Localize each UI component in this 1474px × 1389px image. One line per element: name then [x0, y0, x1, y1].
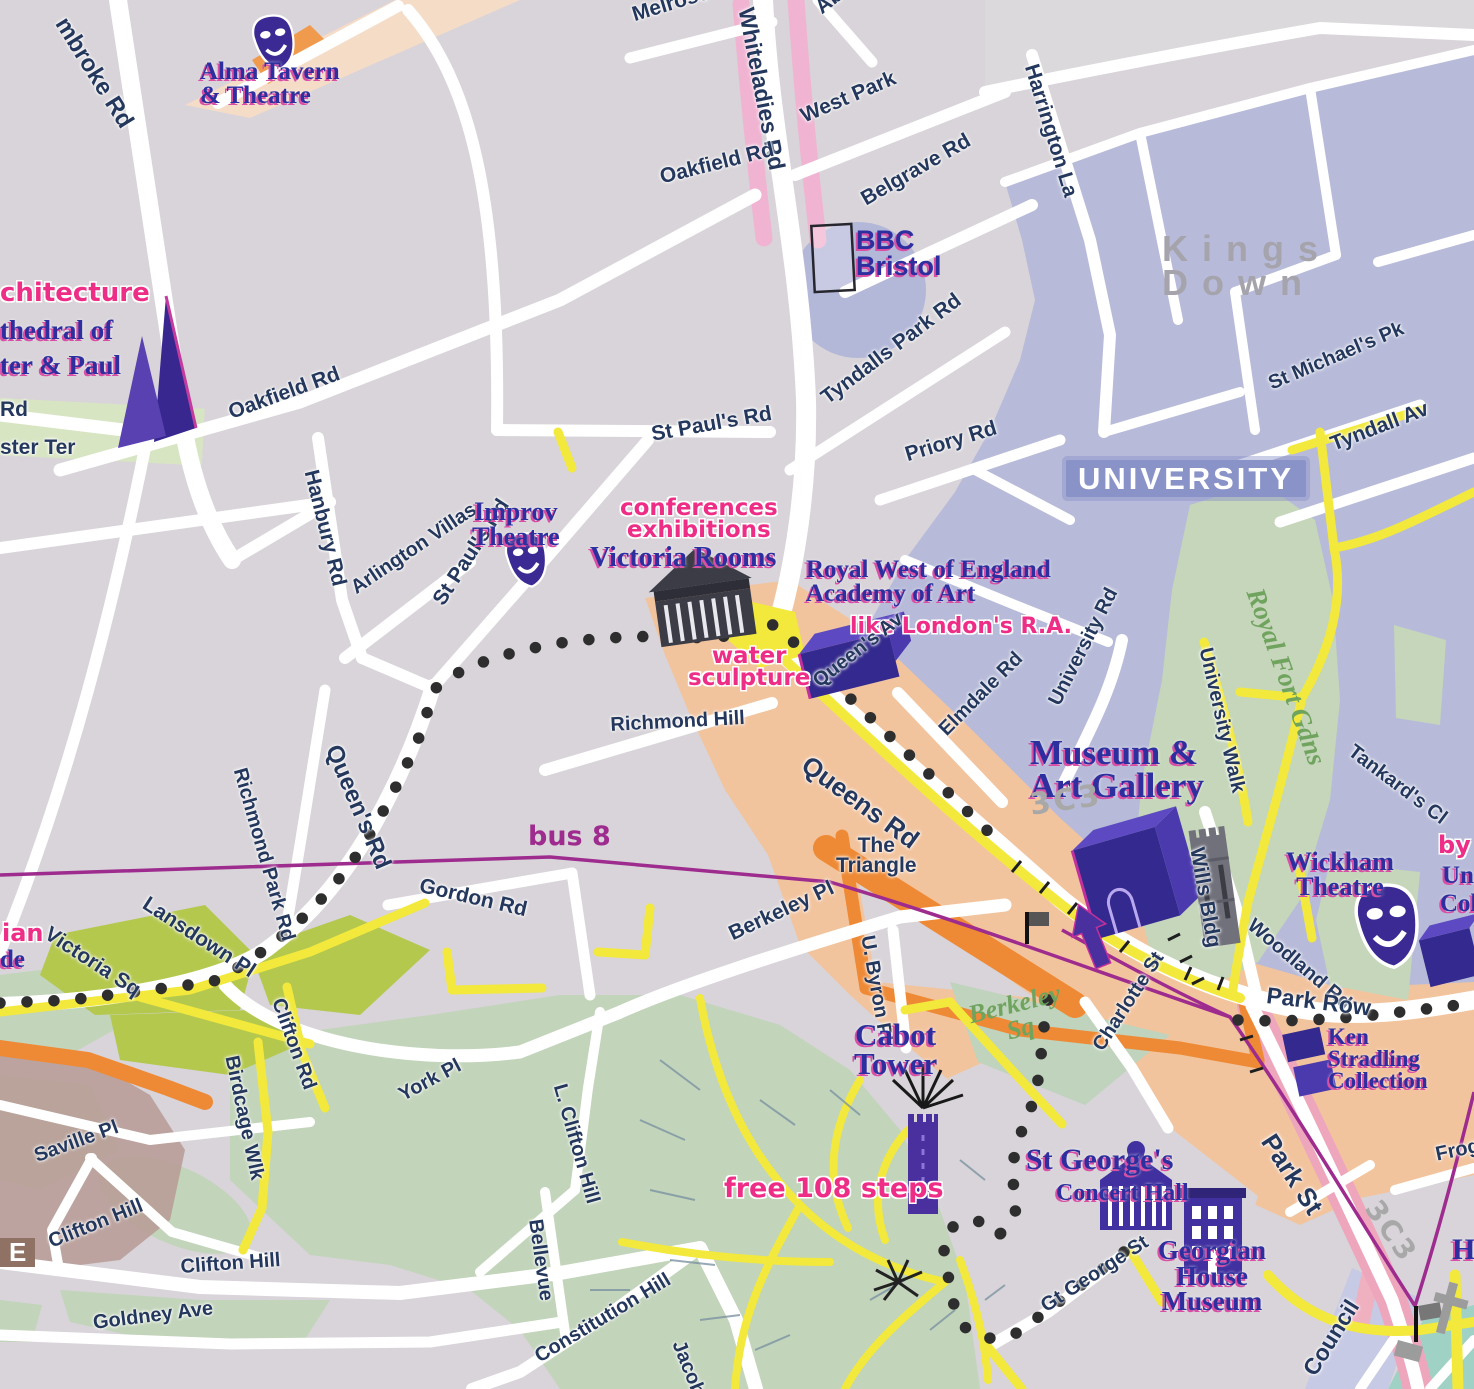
note-free-108-steps: free 108 steps: [724, 1176, 944, 1202]
note-water-sculpture: water sculpture: [688, 646, 810, 690]
street-hanbury-rd: Hanbury Rd: [301, 468, 349, 588]
street-the-triangle: The Triangle: [836, 836, 917, 876]
street-ster-ter-partial: ster Ter: [0, 438, 75, 458]
street-st-michaels-pk: St Michael's Pk: [1266, 319, 1407, 393]
street-saville-pl: Saville Pl: [32, 1118, 121, 1166]
street-oakfield-rd-north: Oakfield Rd: [658, 140, 776, 188]
street-park-row: Park Row: [1265, 985, 1372, 1019]
street-aberdeen-rd: Aberdeen: [812, 0, 901, 18]
route-bus-8: bus 8: [528, 824, 611, 850]
note-by-partial: by: [1438, 834, 1471, 857]
street-bellevue: Bellevue: [525, 1218, 555, 1302]
chip-e-partial: E: [0, 1238, 35, 1267]
street-berkeley-pl: Berkeley Pl: [726, 878, 837, 944]
street-priory-rd: Priory Rd: [903, 418, 999, 465]
poi-concert-hall: Concert Hall: [1056, 1182, 1189, 1205]
street-clifton-hill-east: Clifton Hill: [180, 1251, 281, 1277]
street-birdcage-wlk: Birdcage Wlk: [221, 1054, 266, 1182]
poi-royal-west-academy: Royal West of England Academy of Art: [806, 558, 1051, 606]
street-council-partial: Council: [1300, 1296, 1363, 1379]
street-pembroke-rd: mbroke Rd: [51, 14, 137, 132]
street-melrose-pl: Melrose Pl: [630, 0, 736, 25]
street-harrington-la: Harrington La: [1021, 62, 1080, 199]
street-goldney-ave: Goldney Ave: [92, 1299, 214, 1333]
street-rd-partial: Rd: [0, 400, 28, 420]
glyph-park-st-logo: 3C3: [1360, 1196, 1421, 1267]
street-belgrave-rd: Belgrave Rd: [858, 131, 974, 210]
poi-victoria-rooms: Victoria Rooms: [590, 545, 776, 572]
street-clifton-hill-west: Clifton Hill: [46, 1197, 146, 1252]
street-queens-rd-west: Queen's Rd: [321, 742, 394, 873]
poi-ken-stradling: Ken Stradling Collection: [1328, 1026, 1428, 1092]
poi-cathedral-line2: ter & Paul: [0, 353, 121, 379]
note-ian-partial: ian: [2, 922, 44, 945]
street-richmond-park-rd: Richmond Park Rd: [230, 766, 298, 943]
poi-h-partial: H: [1452, 1236, 1474, 1265]
street-oakfield-rd-west: Oakfield Rd: [226, 364, 342, 423]
street-charlotte-st: Charlotte St: [1090, 949, 1168, 1054]
street-york-pl: York Pl: [396, 1056, 464, 1104]
street-university-rd: University Rd: [1046, 585, 1121, 709]
glyph-museum-logo: 3C3: [1028, 782, 1104, 820]
poi-georgian-house-museum: Georgian House Museum: [1158, 1238, 1266, 1315]
street-gt-george-st: Gt George St: [1038, 1233, 1152, 1316]
note-conferences-exhibitions: conferences exhibitions: [620, 498, 778, 542]
poi-wills-bldg: Wills Bldg: [1186, 846, 1223, 949]
street-victoria-sq: Victoria Sq: [41, 924, 144, 1000]
poi-cabot-tower: Cabot Tower: [854, 1020, 937, 1079]
poi-improv-theatre: Improv Theatre: [472, 500, 560, 549]
street-tankards-cl: Tankard's Cl: [1345, 742, 1450, 828]
street-l-clifton-hill: L. Clifton Hill: [550, 1082, 602, 1206]
poi-col-partial: Col: [1440, 892, 1474, 916]
street-st-pauls-rd-north: St Paul's Rd: [650, 404, 773, 445]
poi-de-partial: de: [0, 948, 25, 972]
street-elmdale-rd: Elmdale Rd: [936, 649, 1026, 739]
poi-un-partial: Un: [1442, 864, 1474, 888]
street-tyndalls-park-rd: Tyndalls Park Rd: [818, 290, 965, 408]
street-tyndall-av: Tyndall Av: [1328, 399, 1431, 455]
poi-bbc-bristol: BBC Bristol: [856, 228, 942, 279]
poi-st-georges: St George's: [1026, 1146, 1173, 1175]
street-richmond-hill: Richmond Hill: [610, 709, 745, 735]
park-royal-fort-gdns: Royal Fort Gdns: [1242, 585, 1330, 769]
street-lansdown-pl: Lansdown Pl: [139, 894, 258, 981]
poi-wickham-theatre: Wickham Theatre: [1286, 850, 1394, 899]
district-university-chip: UNIVERSITY: [1066, 460, 1306, 497]
street-clifton-rd: Clifton Rd: [268, 996, 319, 1092]
street-gordon-rd: Gordon Rd: [418, 876, 529, 920]
park-berkeley-sq: Berkeley Sq: [966, 981, 1069, 1052]
district-kings-down: Kings Down: [1162, 232, 1474, 300]
note-architecture-partial: chitecture: [0, 281, 150, 306]
street-jacob-partial: Jacob: [668, 1338, 707, 1389]
map-canvas: mbroke RdAlma Tavern & TheatreMelrose Pl…: [0, 0, 1474, 1389]
poi-alma-tavern-theatre: Alma Tavern & Theatre: [200, 60, 340, 108]
street-frog-partial: Frog: [1434, 1137, 1474, 1165]
label-layer: mbroke RdAlma Tavern & TheatreMelrose Pl…: [0, 0, 1474, 1389]
street-west-park: West Park: [798, 68, 899, 126]
street-park-st: Park St: [1257, 1130, 1327, 1219]
poi-cathedral-line1: thedral of: [0, 318, 113, 344]
